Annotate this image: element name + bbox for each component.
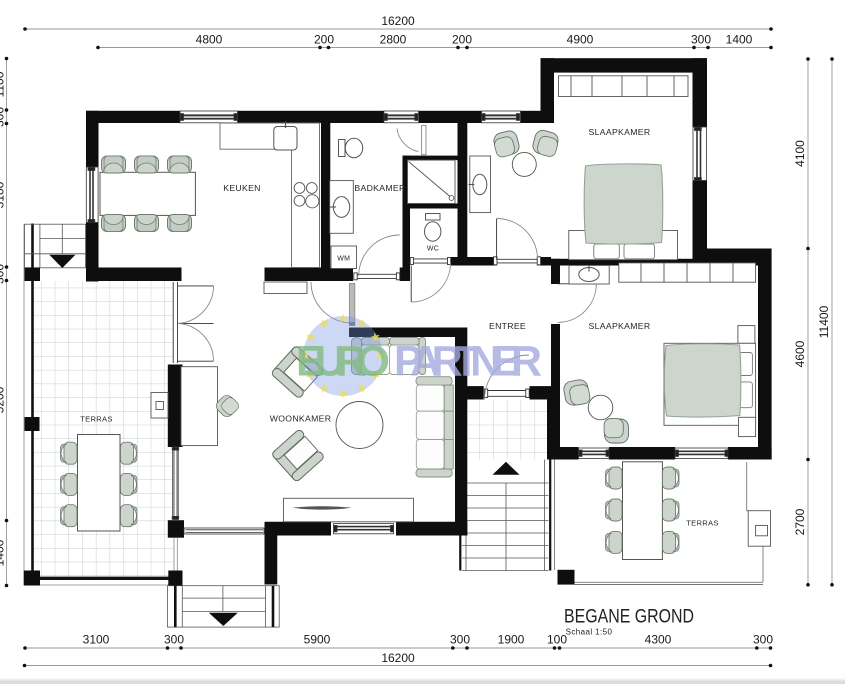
svg-text:4800: 4800	[196, 33, 223, 47]
svg-text:5900: 5900	[304, 633, 331, 647]
svg-text:SLAAPKAMER: SLAAPKAMER	[589, 321, 651, 331]
svg-text:1400: 1400	[0, 539, 7, 566]
svg-text:4600: 4600	[793, 340, 807, 367]
svg-text:ENTREE: ENTREE	[489, 321, 526, 331]
svg-text:300: 300	[450, 633, 470, 647]
svg-text:SLAAPKAMER: SLAAPKAMER	[589, 127, 651, 137]
svg-text:PARTNER: PARTNER	[394, 338, 542, 386]
svg-text:EURO: EURO	[296, 338, 390, 386]
svg-text:300: 300	[691, 33, 711, 47]
svg-text:1400: 1400	[726, 33, 753, 47]
svg-text:BADKAMER: BADKAMER	[354, 183, 405, 193]
svg-text:3100: 3100	[0, 181, 7, 208]
svg-text:5200: 5200	[0, 386, 7, 413]
svg-text:100: 100	[547, 633, 567, 647]
svg-text:300: 300	[164, 633, 184, 647]
svg-text:4300: 4300	[645, 633, 672, 647]
svg-text:WOONKAMER: WOONKAMER	[270, 414, 332, 424]
svg-text:Schaal 1:50: Schaal 1:50	[566, 628, 613, 637]
svg-text:1900: 1900	[498, 633, 525, 647]
svg-text:11400: 11400	[817, 305, 831, 338]
svg-text:TERRAS: TERRAS	[80, 415, 113, 424]
svg-text:300: 300	[753, 633, 773, 647]
svg-text:1100: 1100	[0, 71, 7, 97]
svg-text:300: 300	[0, 264, 7, 284]
svg-text:3100: 3100	[83, 633, 110, 647]
svg-text:200: 200	[314, 33, 334, 47]
svg-text:16200: 16200	[381, 14, 415, 28]
svg-text:16200: 16200	[381, 651, 415, 665]
svg-text:2800: 2800	[380, 33, 407, 47]
svg-text:WM: WM	[337, 256, 350, 263]
svg-text:WC: WC	[427, 246, 439, 253]
svg-text:4900: 4900	[567, 33, 594, 47]
svg-text:KEUKEN: KEUKEN	[223, 183, 261, 193]
svg-text:BEGANE GROND: BEGANE GROND	[564, 607, 694, 628]
svg-text:200: 200	[452, 33, 472, 47]
svg-text:300: 300	[0, 107, 7, 127]
svg-text:TERRAS: TERRAS	[686, 519, 719, 528]
svg-text:2700: 2700	[793, 508, 807, 535]
svg-text:4100: 4100	[793, 140, 807, 167]
